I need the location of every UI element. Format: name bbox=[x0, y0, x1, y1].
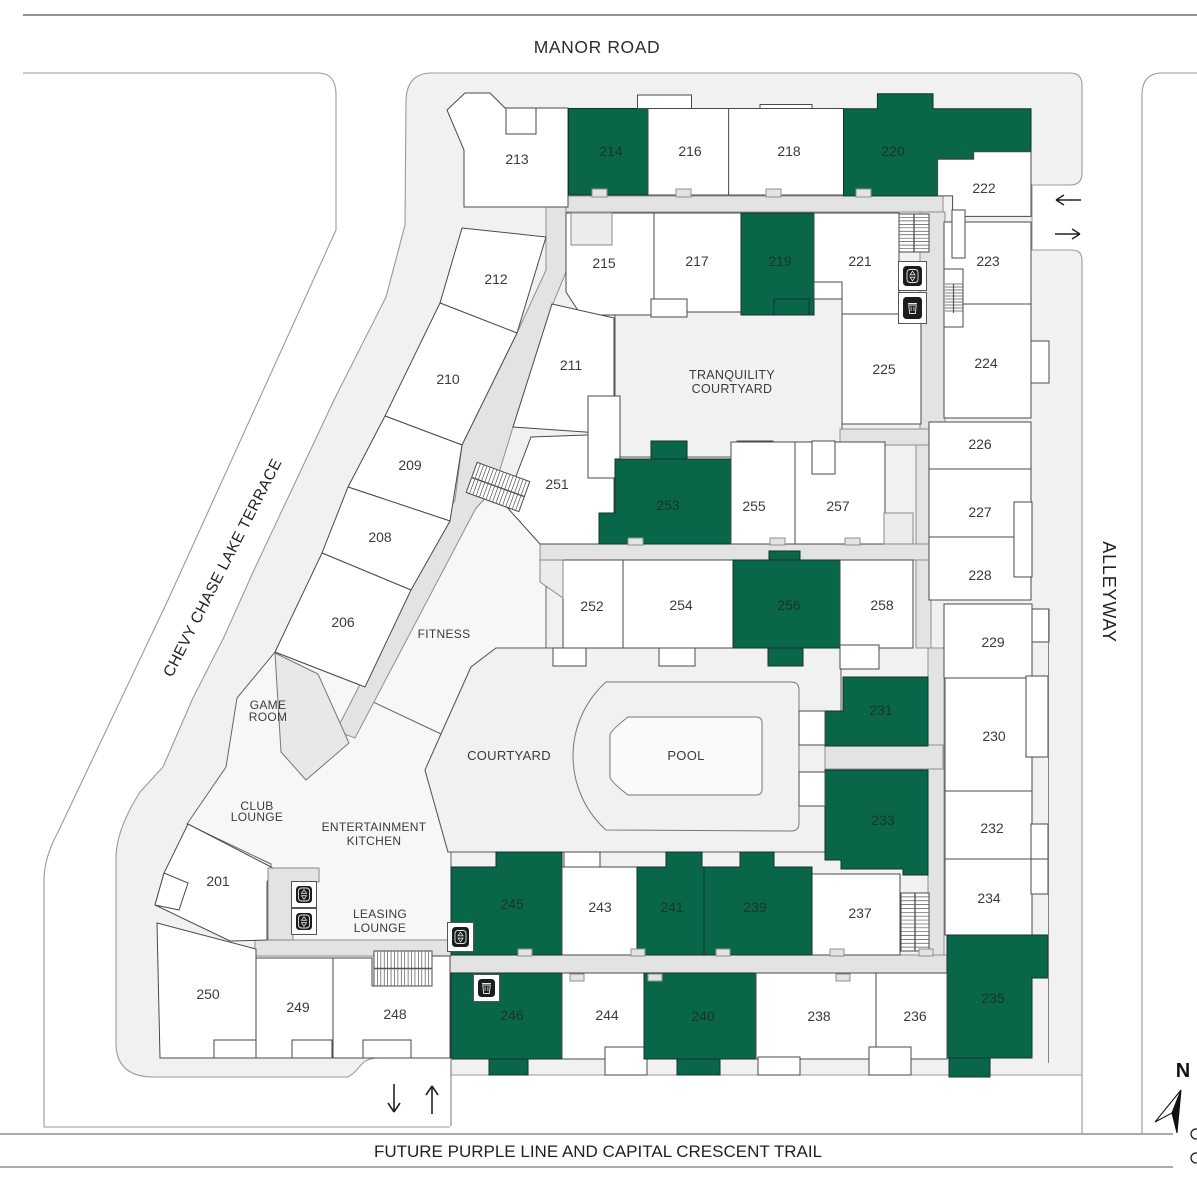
svg-text:238: 238 bbox=[807, 1008, 831, 1024]
svg-text:224: 224 bbox=[974, 355, 998, 371]
svg-text:222: 222 bbox=[972, 180, 996, 196]
svg-text:253: 253 bbox=[656, 497, 680, 513]
svg-text:ROOM: ROOM bbox=[249, 710, 288, 724]
svg-text:201: 201 bbox=[206, 873, 230, 889]
svg-text:206: 206 bbox=[331, 614, 355, 630]
svg-text:252: 252 bbox=[580, 598, 604, 614]
svg-text:219: 219 bbox=[768, 253, 792, 269]
svg-text:240: 240 bbox=[691, 1008, 715, 1024]
svg-text:209: 209 bbox=[398, 457, 422, 473]
svg-text:257: 257 bbox=[826, 498, 850, 514]
svg-text:POOL: POOL bbox=[667, 748, 704, 763]
svg-text:248: 248 bbox=[383, 1006, 407, 1022]
svg-text:246: 246 bbox=[500, 1007, 524, 1023]
svg-text:226: 226 bbox=[968, 436, 992, 452]
svg-text:232: 232 bbox=[980, 820, 1004, 836]
svg-text:230: 230 bbox=[982, 728, 1006, 744]
svg-text:213: 213 bbox=[505, 151, 529, 167]
svg-text:241: 241 bbox=[660, 899, 684, 915]
svg-text:244: 244 bbox=[595, 1007, 619, 1023]
svg-text:225: 225 bbox=[872, 361, 896, 377]
svg-text:239: 239 bbox=[743, 899, 767, 915]
svg-text:FITNESS: FITNESS bbox=[418, 627, 471, 641]
svg-text:235: 235 bbox=[981, 990, 1005, 1006]
svg-text:254: 254 bbox=[669, 597, 693, 613]
svg-text:245: 245 bbox=[500, 896, 524, 912]
svg-text:216: 216 bbox=[678, 143, 702, 159]
svg-text:249: 249 bbox=[286, 999, 310, 1015]
svg-text:236: 236 bbox=[903, 1008, 927, 1024]
svg-text:214: 214 bbox=[599, 143, 623, 159]
svg-text:MANOR ROAD: MANOR ROAD bbox=[534, 37, 661, 57]
svg-text:221: 221 bbox=[848, 253, 872, 269]
svg-text:ALLEYWAY: ALLEYWAY bbox=[1099, 541, 1119, 642]
svg-text:215: 215 bbox=[592, 255, 616, 271]
svg-text:234: 234 bbox=[977, 890, 1001, 906]
svg-text:210: 210 bbox=[436, 371, 460, 387]
svg-text:N: N bbox=[1176, 1060, 1190, 1082]
svg-text:256: 256 bbox=[777, 597, 801, 613]
svg-text:237: 237 bbox=[848, 905, 872, 921]
svg-text:228: 228 bbox=[968, 567, 992, 583]
svg-text:211: 211 bbox=[560, 357, 583, 373]
svg-text:KITCHEN: KITCHEN bbox=[347, 834, 402, 848]
svg-text:223: 223 bbox=[976, 253, 1000, 269]
svg-text:217: 217 bbox=[685, 253, 709, 269]
svg-text:FUTURE PURPLE LINE AND CAPITAL: FUTURE PURPLE LINE AND CAPITAL CRESCENT … bbox=[374, 1142, 822, 1161]
svg-text:258: 258 bbox=[870, 597, 894, 613]
svg-text:LOUNGE: LOUNGE bbox=[231, 810, 283, 824]
svg-text:212: 212 bbox=[484, 271, 508, 287]
svg-text:233: 233 bbox=[871, 812, 895, 828]
svg-text:227: 227 bbox=[968, 504, 992, 520]
svg-text:255: 255 bbox=[742, 498, 766, 514]
svg-text:229: 229 bbox=[981, 634, 1005, 650]
svg-text:251: 251 bbox=[545, 476, 569, 492]
svg-text:243: 243 bbox=[588, 899, 612, 915]
svg-text:220: 220 bbox=[881, 143, 905, 159]
svg-text:208: 208 bbox=[368, 529, 392, 545]
svg-text:LOUNGE: LOUNGE bbox=[354, 921, 406, 935]
svg-text:LEASING: LEASING bbox=[353, 907, 407, 921]
svg-text:COURTYARD: COURTYARD bbox=[467, 748, 551, 763]
svg-text:231: 231 bbox=[869, 702, 893, 718]
svg-text:TRANQUILITY: TRANQUILITY bbox=[689, 368, 775, 382]
svg-text:COURTYARD: COURTYARD bbox=[692, 382, 773, 396]
svg-text:250: 250 bbox=[196, 986, 220, 1002]
svg-text:218: 218 bbox=[777, 143, 801, 159]
svg-text:ENTERTAINMENT: ENTERTAINMENT bbox=[322, 820, 427, 834]
